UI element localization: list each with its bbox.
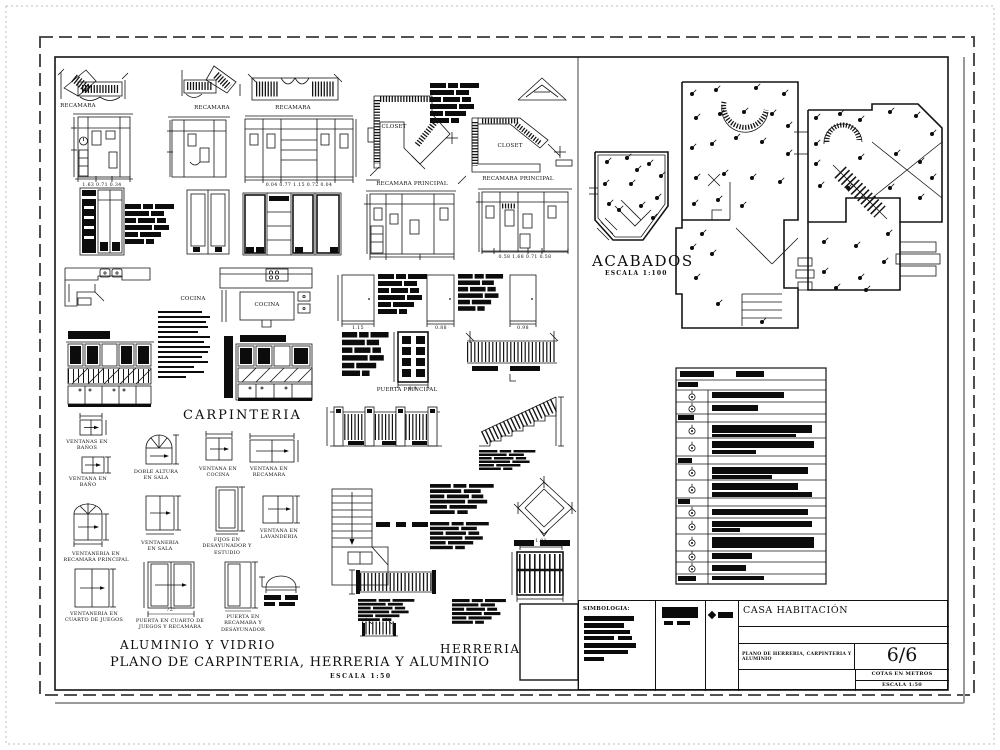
plan-acabados-right	[794, 104, 942, 292]
titleblock-bottom-rows: COTAS EN METROS ESCALA 1:50	[738, 669, 949, 691]
redacted-note	[430, 484, 494, 514]
legend-table	[676, 368, 826, 584]
balcony-rail	[349, 570, 436, 594]
window-sala	[146, 496, 181, 534]
dim-puerta-principal: 0.9	[396, 388, 430, 393]
titleblock-empty-row	[738, 627, 949, 644]
label-closet-2: CLOSET	[494, 143, 526, 150]
titleblock-logo-cell	[655, 601, 706, 691]
front-wardrobe-2	[187, 190, 229, 254]
blank-box	[520, 604, 578, 680]
label-ventanas-banos: VENTANAS EN BAÑOS	[62, 439, 112, 452]
plan-acabados-center	[676, 82, 814, 328]
label-puerta-juegos: PUERTA EN CUARTO DE JUEGOS Y RECAMARA	[132, 618, 208, 631]
sheet-name: PLANO DE HERRERIA, CARPINTERIA Y ALUMINI…	[738, 643, 855, 669]
dim-reja: 1.01	[521, 540, 561, 545]
door-2	[427, 275, 454, 327]
drawing-sheet: RECAMARA RECAMARA RECAMARA CLOSET CLOSET…	[0, 0, 1000, 750]
porch-railing	[466, 331, 558, 381]
window-cuarto-juegos	[75, 569, 116, 607]
elev-closet-3	[245, 116, 356, 183]
puerta-principal-door	[394, 332, 428, 388]
label-cuarto-juegos: VENTANERIA EN CUARTO DE JUEGOS	[58, 611, 130, 624]
elev-rp-2	[476, 189, 572, 254]
label-lavanderia: VENTANA EN LAVANDERIA	[255, 528, 303, 541]
label-fijos: FIJOS EN DESAYUNADOR Y ESTUDIO	[200, 537, 254, 556]
label-recamara-2: RECAMARA	[182, 105, 242, 112]
label-recamara-principal-2: RECAMARA PRINCIPAL	[468, 176, 568, 183]
window-banos	[80, 413, 106, 435]
stair-plan	[332, 489, 428, 585]
title-acabados: ACABADOS	[592, 252, 694, 270]
plan-cocina-2	[220, 268, 312, 327]
plan-recamara-2	[182, 66, 240, 98]
dim-door3: 0.98	[506, 327, 540, 332]
label-puerta-recamara: PUERTA EN RECAMARA Y DESAYUNADOR	[214, 614, 272, 633]
plan-cocina-1	[65, 268, 150, 306]
arch-detail	[259, 576, 300, 606]
redacted-note	[125, 204, 174, 244]
label-ventaneria-rp: VENTANERIA EN RECAMARA PRINCIPAL	[56, 551, 136, 564]
stairs-elevation	[479, 397, 564, 446]
north-symbol	[708, 611, 716, 619]
label-recamara-3: RECAMARA	[263, 105, 323, 112]
fence-elevation	[327, 407, 442, 446]
reja-window	[512, 544, 563, 602]
acabados-escala: ESCALA 1:100	[605, 270, 668, 277]
window-lavanderia	[263, 496, 300, 523]
simbologia-label: SIMBOLOGIA:	[583, 606, 630, 612]
gable-detail	[514, 476, 576, 546]
label-ventana-cocina: VENTANA EN COCINA	[196, 466, 240, 479]
label-doble-altura: DOBLE ALTURA EN SALA	[132, 469, 180, 482]
plan-closet-principal-2	[458, 78, 572, 184]
window-bano	[82, 457, 111, 473]
page-number: 6/6	[855, 643, 949, 669]
escala-note: ESCALA 1:50	[855, 680, 949, 691]
elev-closet-2	[167, 117, 230, 177]
dim-door1: 1.15	[338, 327, 378, 332]
redacted-note	[342, 332, 389, 376]
dim-elev3: 0.04 0.77 1.15 0.72 0.04	[243, 184, 355, 189]
dim-elev-rp: 0.58 1.68 0.71 0.58	[480, 256, 570, 261]
titleblock-symbol-cell	[705, 601, 739, 691]
redacted-note	[378, 274, 427, 314]
front-wardrobe-3	[243, 193, 341, 255]
dim-elev1: 1.63 0.71 0.34	[70, 184, 134, 189]
sheet-main-title: PLANO DE CARPINTERIA, HERRERIA Y ALUMINI…	[110, 655, 490, 670]
label-ventana-recamara: VENTANA EN RECAMARA	[243, 466, 295, 479]
door-1	[338, 275, 374, 327]
elev-cocina-2	[224, 335, 312, 401]
title-carpinteria: CARPINTERIA	[183, 408, 302, 423]
dim-door2: 0.88	[424, 327, 458, 332]
elev-cocina-1	[66, 331, 154, 407]
plan-recamara-3	[248, 74, 342, 100]
redacted-note	[430, 83, 479, 123]
titleblock-sheet-row: PLANO DE HERRERIA, CARPINTERIA Y ALUMINI…	[738, 643, 949, 670]
window-recamara	[250, 433, 298, 462]
redacted-note	[479, 450, 535, 470]
titleblock-simbologia-cell: SIMBOLOGIA:	[579, 601, 656, 691]
title-aluminio-vidrio: ALUMINIO Y VIDRIO	[120, 638, 276, 652]
window-doble-altura	[146, 435, 179, 464]
dim-puerta-juegos: 72"	[149, 609, 193, 614]
elev-closet-1	[71, 114, 133, 182]
project-name: CASA HABITACIÓN	[738, 601, 949, 627]
window-fijos	[216, 487, 245, 534]
note-lines-cocina	[158, 311, 210, 378]
title-block: SIMBOLOGIA: CASA HABITACIÓN PLANO DE HER…	[578, 600, 948, 690]
window-rp	[74, 503, 109, 547]
titleblock-info: CASA HABITACIÓN PLANO DE HERRERIA, CARPI…	[738, 601, 949, 691]
plan-recamara-1	[58, 69, 128, 101]
plan-acabados-left	[589, 152, 668, 240]
front-wardrobe-1	[80, 188, 124, 255]
label-recamara-1: RECAMARA	[48, 103, 108, 110]
label-closet-1: CLOSET	[378, 124, 410, 131]
sheet-main-escala: ESCALA 1:50	[330, 673, 392, 680]
label-recamara-principal-1: RECAMARA PRINCIPAL	[362, 181, 462, 188]
label-ventaneria-sala: VENTANERIA EN SALA	[138, 540, 182, 553]
redacted-note	[458, 274, 503, 311]
label-cocina-1: COCINA	[168, 296, 218, 303]
titleblock-blank-cell	[738, 669, 856, 691]
window-cocina	[206, 431, 232, 460]
redacted-note	[452, 599, 506, 624]
label-cocina-2: COCINA	[241, 302, 293, 309]
redacted-note	[430, 522, 489, 549]
redacted-note	[358, 599, 414, 621]
title-herreria: HERRERIA	[440, 642, 521, 656]
elev-rp-1	[364, 191, 456, 260]
door-3	[510, 275, 536, 327]
label-ventana-bano: VENTANA EN BAÑO	[64, 476, 112, 489]
puerta-recamara-desayunador	[225, 562, 258, 611]
